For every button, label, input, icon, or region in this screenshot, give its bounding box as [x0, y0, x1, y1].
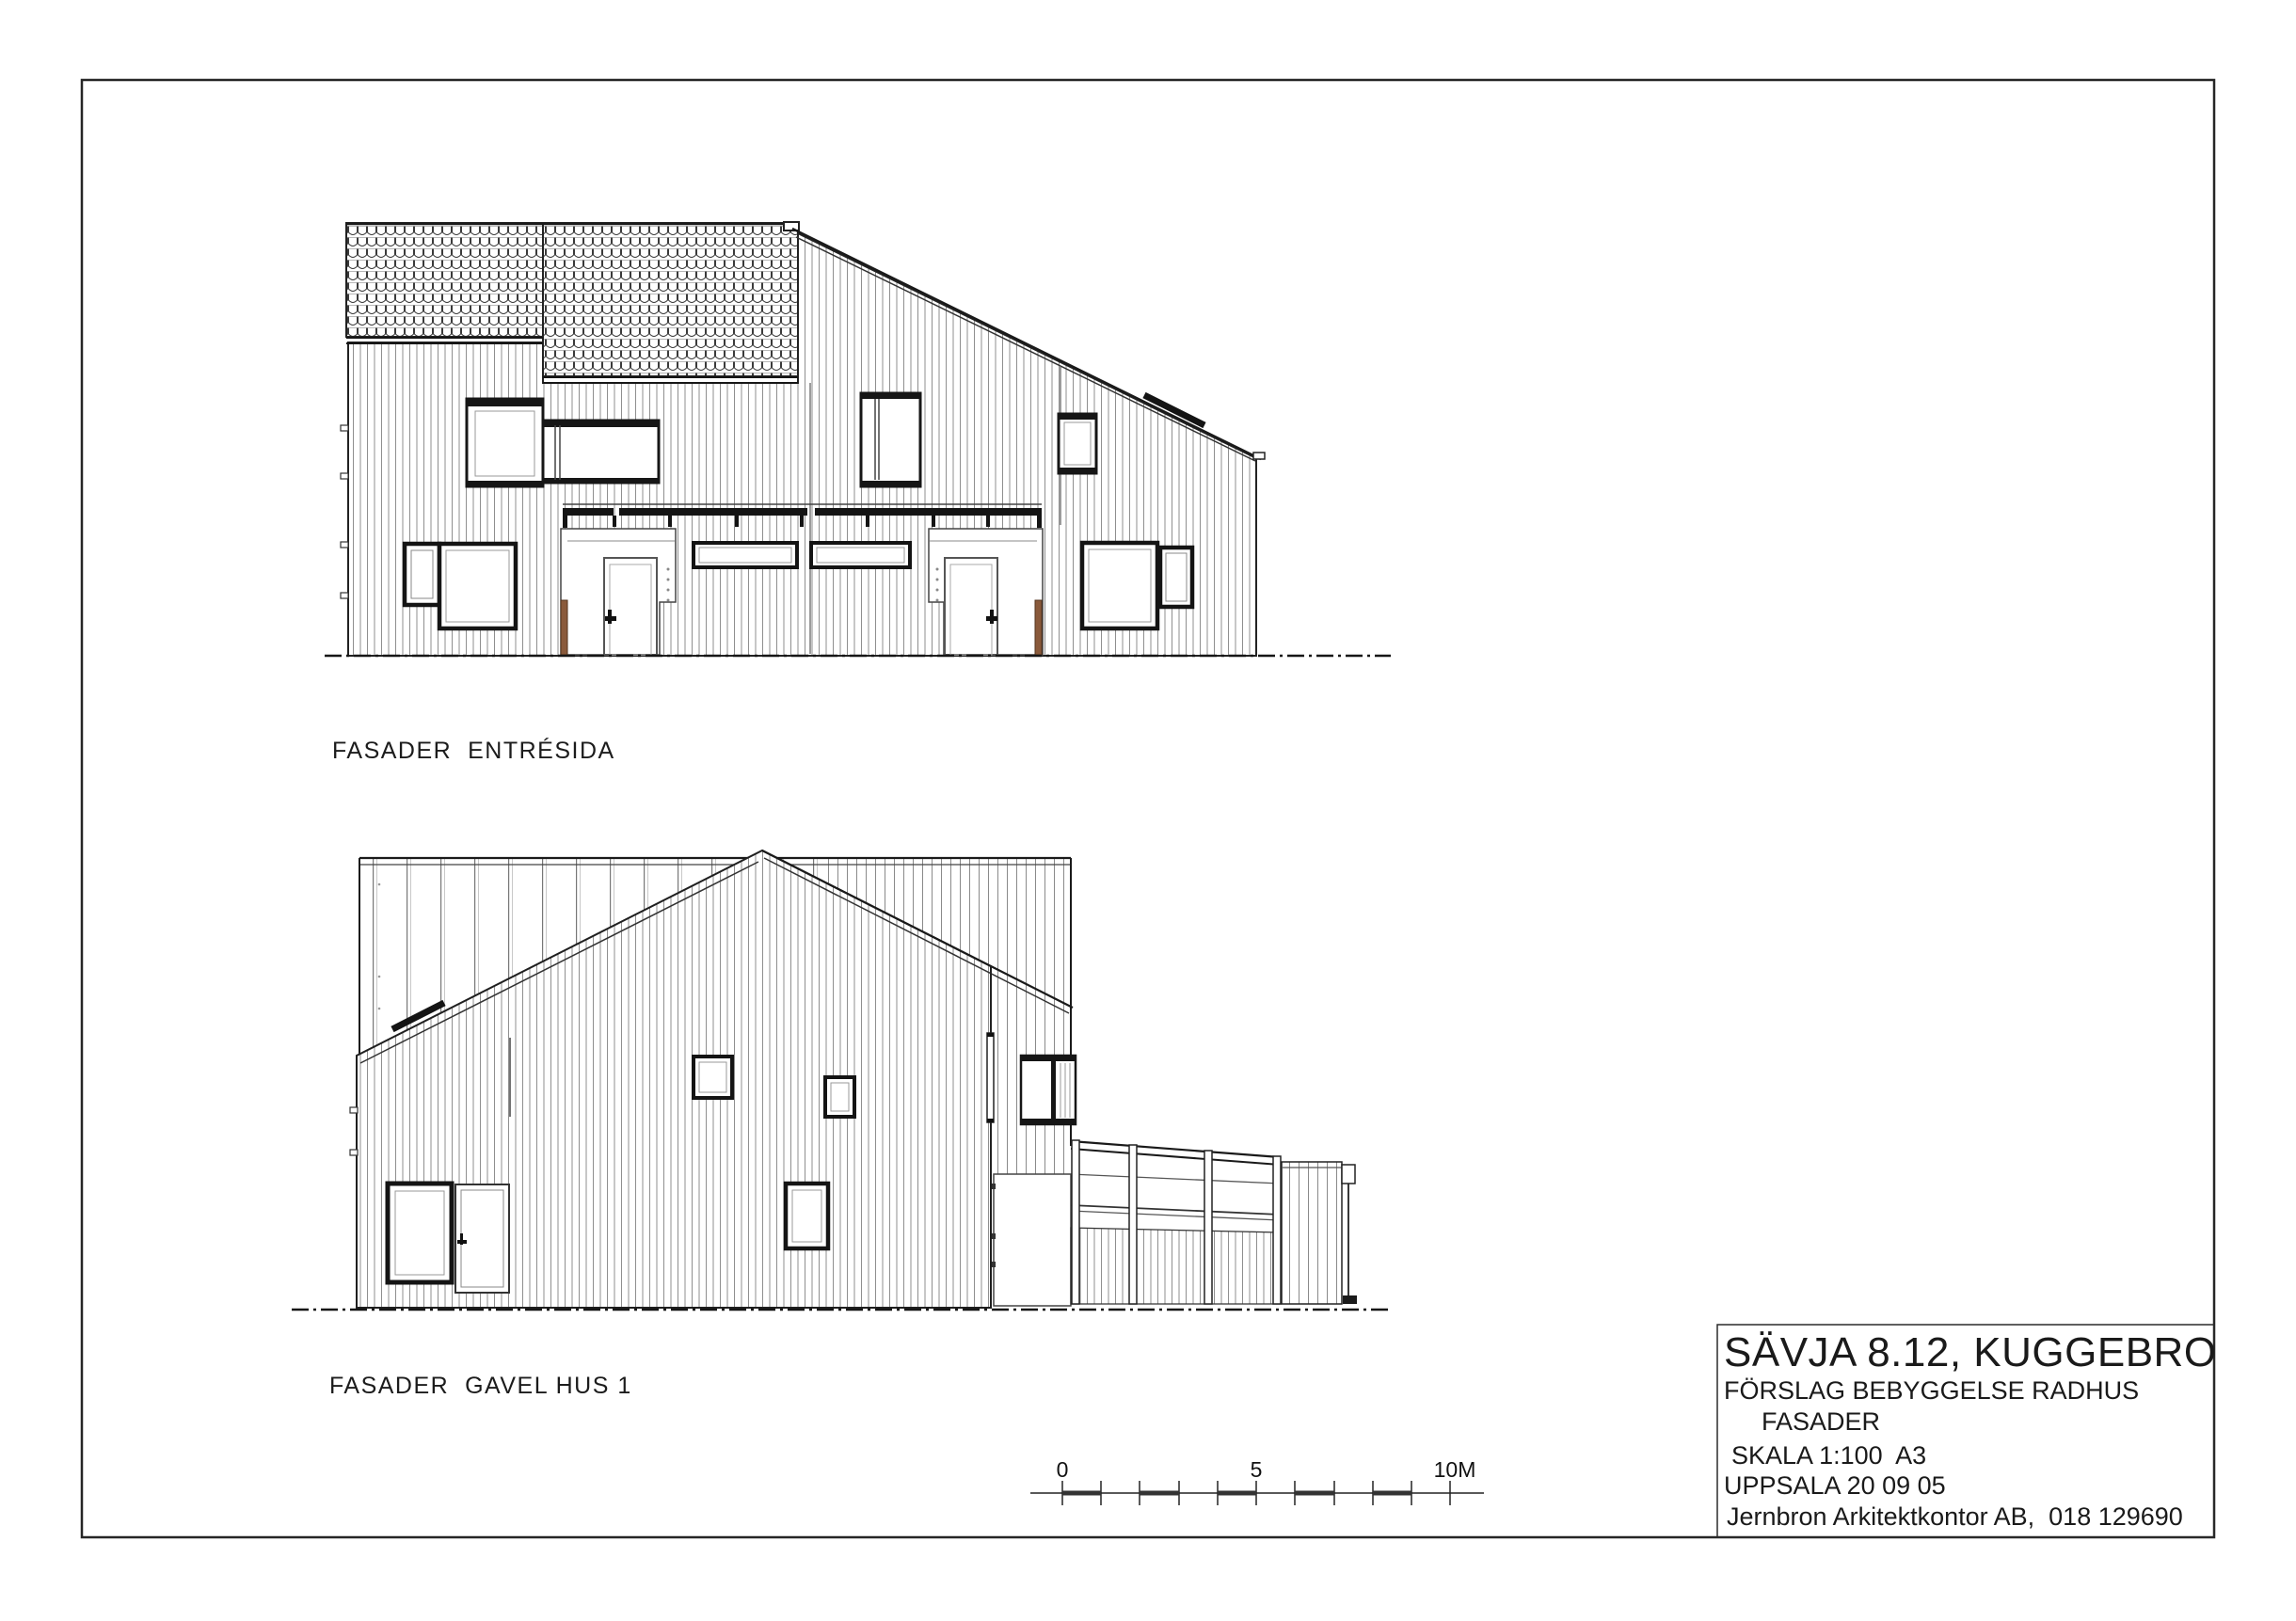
downpipe — [1342, 1165, 1357, 1304]
window-small-right — [1059, 414, 1096, 473]
eave-bracket — [1253, 453, 1265, 459]
wood-post-right — [1035, 600, 1042, 655]
wood-post-left — [561, 600, 567, 655]
window-lower-left-large — [439, 544, 516, 628]
window-upper-left — [467, 399, 543, 486]
pergola — [1071, 1140, 1357, 1304]
elevation2-label: FASADER GAVEL HUS 1 — [329, 1373, 632, 1400]
entry-door-right — [945, 558, 997, 655]
scale-label-0: 0 — [1057, 1457, 1069, 1482]
side-door-opening — [992, 1174, 1071, 1306]
sliver-window — [987, 1033, 994, 1122]
architect-firm: Jernbron Arkitektkontor AB, 018 129690 — [1727, 1502, 2183, 1532]
window-gable-mid — [694, 1057, 732, 1098]
window-lower-right-small — [1160, 548, 1192, 607]
window-gable-lower-left — [388, 1184, 452, 1282]
window-slot-right — [811, 543, 910, 567]
window-slot-left — [694, 543, 797, 567]
window-corner — [1021, 1056, 1076, 1124]
scale-label-5: 5 — [1251, 1457, 1263, 1482]
pergola-fence — [1071, 1228, 1280, 1304]
project-subtitle: FÖRSLAG BEBYGGELSE RADHUS — [1724, 1376, 2139, 1406]
window-gable-small — [825, 1077, 854, 1117]
drawing-sheet: 0 5 10M FASADER ENTRÉSIDA FASADER GAVEL … — [0, 0, 2296, 1621]
scale-label-10m: 10M — [1434, 1457, 1476, 1482]
downpipe-brackets — [341, 425, 348, 598]
ridge-box — [784, 222, 799, 230]
window-upper-wide — [543, 421, 659, 483]
elevation-gavel — [292, 850, 1391, 1310]
drawing-type: FASADER — [1762, 1407, 1880, 1437]
window-lower-right-large — [1082, 543, 1157, 628]
entry-bay-right — [929, 529, 1043, 655]
gable-door — [455, 1184, 509, 1293]
project-title: SÄVJA 8.12, KUGGEBRO — [1724, 1329, 2217, 1376]
pergola-end-panel — [1282, 1162, 1342, 1304]
elevation1-label: FASADER ENTRÉSIDA — [332, 738, 615, 765]
window-gable-lower-right — [786, 1184, 828, 1248]
entry-door-left — [604, 558, 657, 655]
window-lower-left-small — [405, 544, 439, 605]
scale-note: SKALA 1:100 A3 — [1731, 1441, 1926, 1470]
place-date: UPPSALA 20 09 05 — [1724, 1471, 1946, 1501]
elevation-entresida — [325, 222, 1391, 656]
window-tall-mid — [861, 393, 920, 486]
scale-bar: 0 5 10M — [1030, 1457, 1484, 1505]
entry-bay-left — [561, 529, 676, 655]
